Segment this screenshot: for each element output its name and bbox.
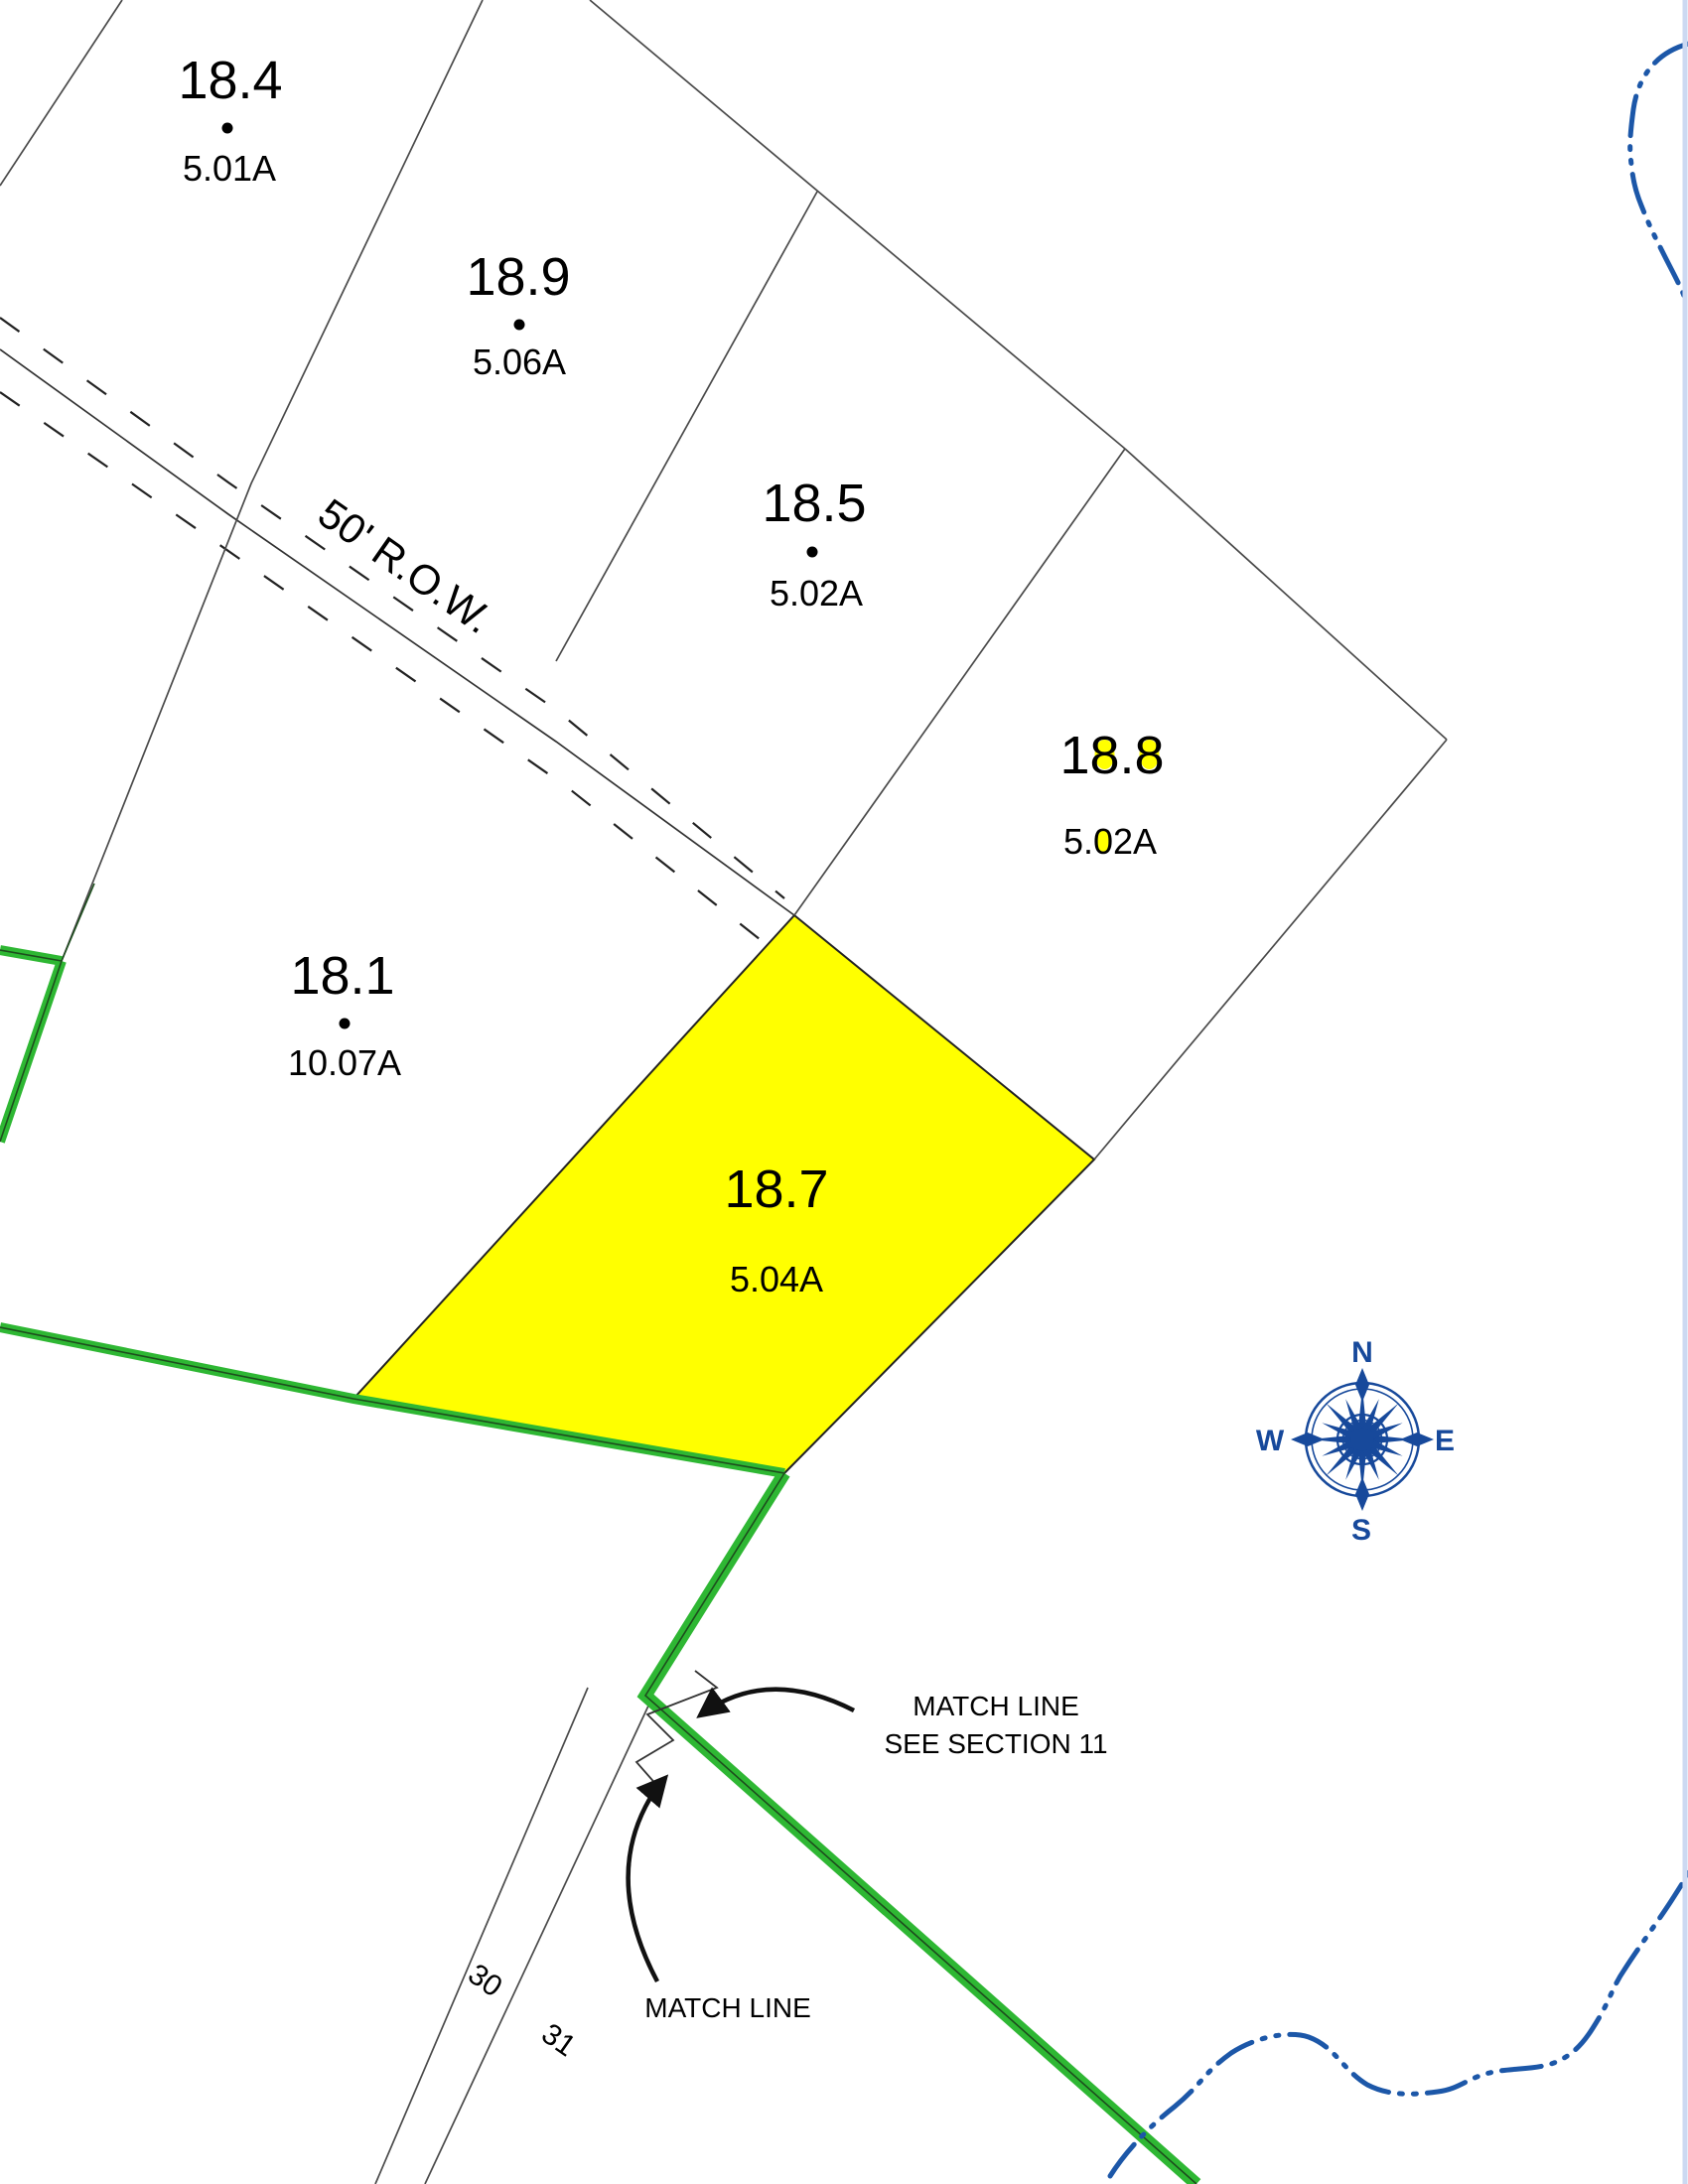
- parcel-18-9-number: 18.9: [466, 247, 570, 307]
- parcel-18-5-center-dot: [807, 547, 818, 558]
- compass-west-letter: W: [1256, 1425, 1285, 1457]
- parcel-18-9-acreage: 5.06A: [473, 341, 566, 382]
- parcel-18-1-number: 18.1: [290, 946, 394, 1006]
- parcel-18-4-acreage: 5.01A: [183, 148, 276, 189]
- parcel-18-8-number: 18.8: [1059, 726, 1164, 785]
- parcel-18-4-number: 18.4: [178, 51, 282, 110]
- match-line-callout-line1: MATCH LINE: [913, 1691, 1079, 1721]
- parcel-18-1-acreage: 10.07A: [288, 1042, 401, 1083]
- match-line-label: MATCH LINE: [644, 1992, 811, 2023]
- tax-map-canvas: 18.4 5.01A 18.9 5.06A 18.5 5.02A 18.8 5.…: [0, 0, 1688, 2184]
- parcel-18-8-acreage: 5.02A: [1063, 821, 1157, 862]
- compass-north-letter: N: [1351, 1336, 1373, 1369]
- parcel-18-5-number: 18.5: [762, 474, 866, 533]
- compass-center-dot: [1351, 1429, 1374, 1451]
- parcel-18-4-center-dot: [222, 123, 233, 134]
- map-viewport[interactable]: 18.4 5.01A 18.9 5.06A 18.5 5.02A 18.8 5.…: [0, 0, 1688, 2184]
- parcel-18-7-number: 18.7: [724, 1160, 828, 1219]
- parcel-18-9-center-dot: [514, 320, 525, 331]
- parcel-18-1-center-dot: [340, 1019, 351, 1029]
- compass-south-letter: S: [1351, 1514, 1371, 1547]
- compass-east-letter: E: [1435, 1425, 1455, 1457]
- match-line-callout-line2: SEE SECTION 11: [884, 1728, 1107, 1759]
- parcel-18-5-acreage: 5.02A: [770, 573, 863, 614]
- parcel-18-7-acreage: 5.04A: [730, 1259, 823, 1299]
